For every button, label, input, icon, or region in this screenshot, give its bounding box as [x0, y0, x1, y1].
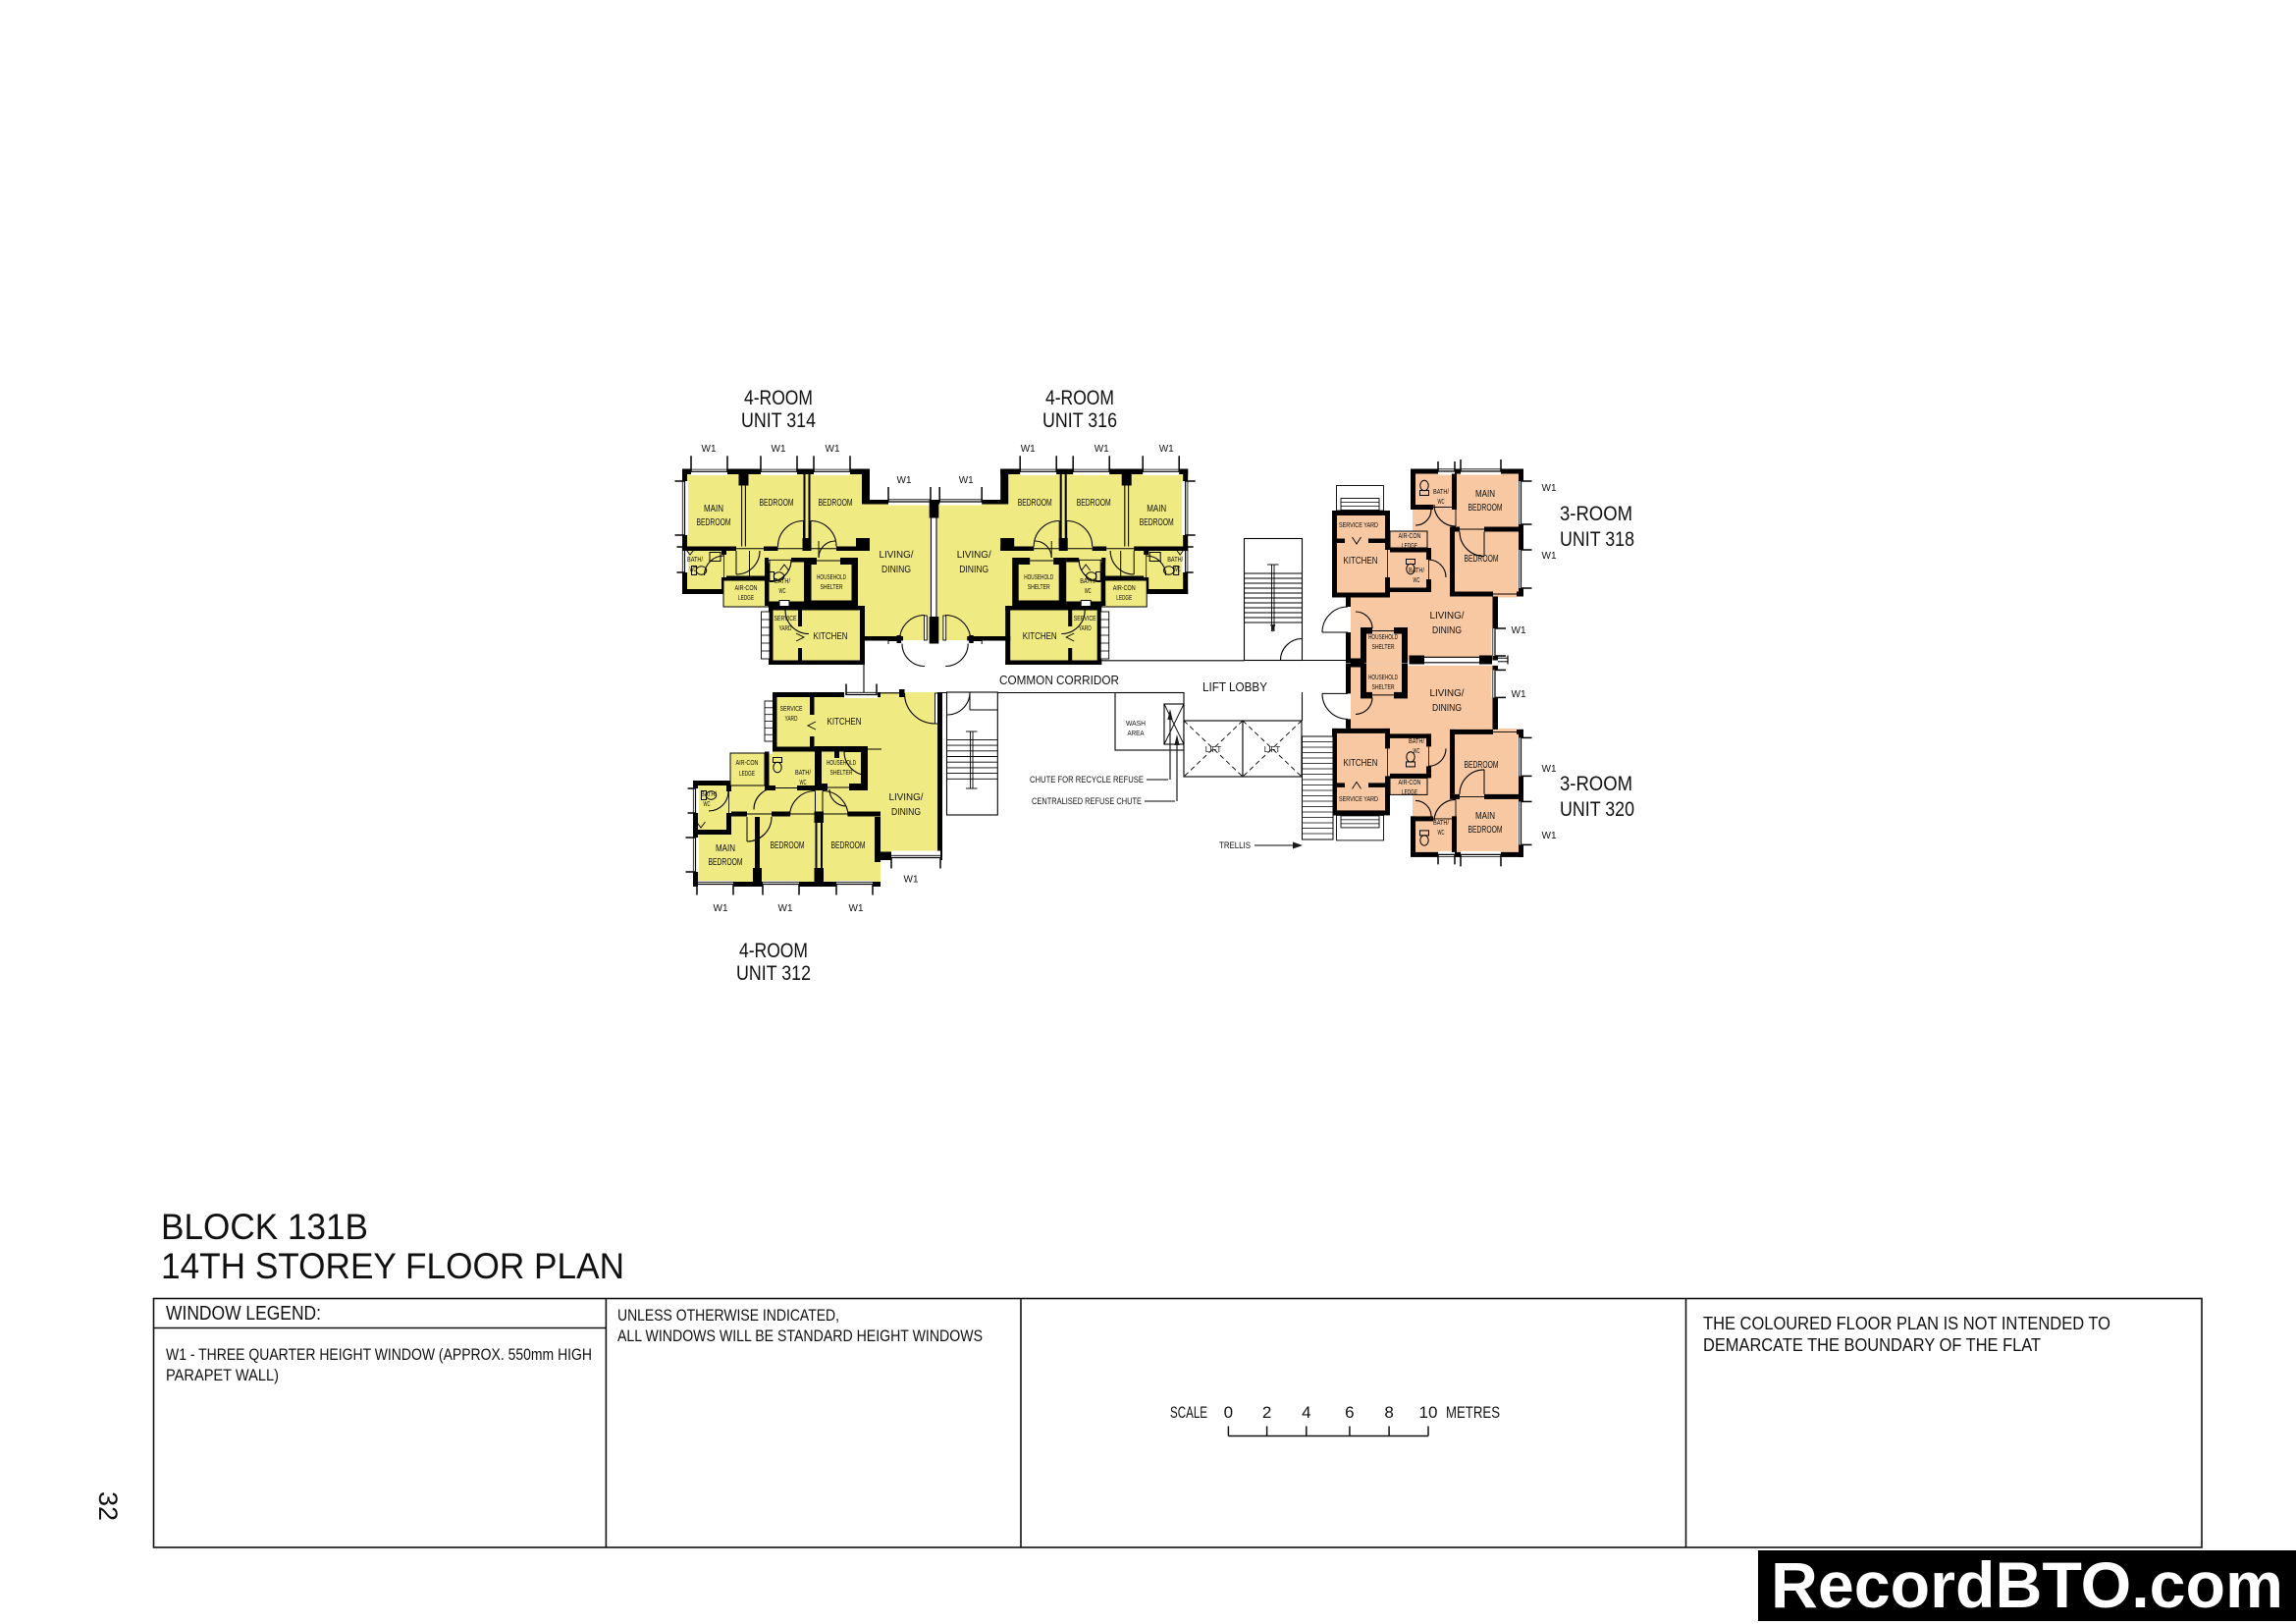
- svg-text:YARD: YARD: [785, 716, 798, 723]
- svg-text:4-ROOM: 4-ROOM: [744, 387, 813, 409]
- svg-text:32: 32: [93, 1491, 123, 1521]
- svg-text:BEDROOM: BEDROOM: [697, 516, 731, 528]
- svg-text:W1: W1: [714, 903, 728, 914]
- svg-text:RecordBTO.com: RecordBTO.com: [1771, 1548, 2283, 1621]
- svg-text:UNIT 316: UNIT 316: [1042, 409, 1117, 432]
- svg-text:YARD: YARD: [779, 625, 792, 632]
- svg-text:METRES: METRES: [1446, 1403, 1500, 1422]
- svg-text:3-ROOM: 3-ROOM: [1560, 503, 1632, 525]
- svg-text:LIFT: LIFT: [1205, 745, 1222, 754]
- svg-text:WC: WC: [1438, 499, 1445, 506]
- svg-text:W1: W1: [849, 903, 864, 914]
- svg-text:HOUSEHOLD: HOUSEHOLD: [1024, 574, 1053, 581]
- svg-text:SHELTER: SHELTER: [1372, 684, 1395, 691]
- svg-text:WASH: WASH: [1126, 719, 1146, 728]
- svg-text:WC: WC: [704, 801, 711, 808]
- svg-text:SERVICE: SERVICE: [774, 616, 797, 623]
- svg-text:WC: WC: [779, 588, 786, 595]
- svg-text:COMMON CORRIDOR: COMMON CORRIDOR: [999, 673, 1119, 687]
- svg-text:MAIN: MAIN: [1475, 810, 1495, 822]
- svg-text:W1: W1: [904, 875, 919, 886]
- svg-text:W1: W1: [1512, 689, 1526, 700]
- svg-text:LEDGE: LEDGE: [1402, 543, 1417, 550]
- svg-text:KITCHEN: KITCHEN: [828, 716, 862, 728]
- svg-text:10: 10: [1419, 1403, 1438, 1422]
- svg-text:BEDROOM: BEDROOM: [1465, 553, 1499, 565]
- svg-text:BEDROOM: BEDROOM: [760, 497, 794, 509]
- svg-text:WINDOW LEGEND:: WINDOW LEGEND:: [166, 1303, 321, 1325]
- svg-text:WC: WC: [1414, 748, 1420, 755]
- svg-text:W1: W1: [1512, 625, 1526, 636]
- svg-text:CHUTE FOR RECYCLE REFUSE: CHUTE FOR RECYCLE REFUSE: [1030, 775, 1144, 785]
- svg-text:MAIN: MAIN: [1475, 488, 1495, 500]
- svg-text:SERVICE YARD: SERVICE YARD: [1339, 796, 1378, 803]
- svg-text:4: 4: [1302, 1403, 1310, 1422]
- svg-text:MAIN: MAIN: [704, 503, 723, 514]
- svg-text:BEDROOM: BEDROOM: [1468, 824, 1503, 836]
- svg-text:0: 0: [1224, 1403, 1233, 1422]
- svg-text:DINING: DINING: [959, 564, 988, 575]
- svg-text:3-ROOM: 3-ROOM: [1560, 773, 1632, 795]
- svg-text:BATH/: BATH/: [687, 557, 703, 564]
- svg-text:W1: W1: [1542, 551, 1557, 562]
- svg-text:DINING: DINING: [881, 564, 911, 575]
- svg-text:UNIT 312: UNIT 312: [736, 962, 811, 985]
- svg-text:DINING: DINING: [1432, 702, 1462, 714]
- svg-text:MAIN: MAIN: [1147, 503, 1166, 514]
- svg-text:CENTRALISED REFUSE CHUTE: CENTRALISED REFUSE CHUTE: [1032, 796, 1142, 807]
- svg-text:W1: W1: [1095, 444, 1109, 455]
- svg-text:8: 8: [1384, 1403, 1393, 1422]
- svg-text:BATH/: BATH/: [1433, 820, 1449, 827]
- svg-text:DINING: DINING: [891, 806, 921, 818]
- svg-text:HOUSEHOLD: HOUSEHOLD: [817, 574, 846, 581]
- svg-text:UNIT 320: UNIT 320: [1560, 798, 1634, 821]
- svg-text:W1 - THREE QUARTER HEIGHT WIND: W1 - THREE QUARTER HEIGHT WINDOW (APPROX…: [166, 1345, 592, 1364]
- svg-text:W1: W1: [897, 475, 912, 486]
- svg-text:SERVICE: SERVICE: [780, 706, 803, 713]
- svg-text:SCALE: SCALE: [1170, 1403, 1207, 1422]
- svg-text:AIR-CON: AIR-CON: [736, 760, 759, 767]
- svg-text:W1: W1: [778, 903, 793, 914]
- svg-text:KITCHEN: KITCHEN: [814, 630, 848, 642]
- svg-text:BATH/: BATH/: [795, 770, 811, 777]
- svg-text:BATH/: BATH/: [1409, 568, 1424, 574]
- svg-text:LIVING/: LIVING/: [1430, 687, 1465, 699]
- svg-text:LIVING/: LIVING/: [1430, 610, 1465, 622]
- svg-text:LIFT: LIFT: [1264, 745, 1281, 754]
- svg-text:LEDGE: LEDGE: [739, 771, 755, 778]
- svg-text:KITCHEN: KITCHEN: [1023, 630, 1057, 642]
- svg-text:THE COLOURED FLOOR PLAN IS NOT: THE COLOURED FLOOR PLAN IS NOT INTENDED …: [1703, 1314, 2110, 1333]
- svg-text:TRELLIS: TRELLIS: [1219, 840, 1251, 851]
- svg-text:HOUSEHOLD: HOUSEHOLD: [1368, 634, 1398, 641]
- svg-text:AIR-CON: AIR-CON: [1399, 533, 1421, 540]
- svg-text:6: 6: [1345, 1403, 1354, 1422]
- svg-text:LIVING/: LIVING/: [880, 549, 914, 561]
- svg-text:KITCHEN: KITCHEN: [1344, 757, 1378, 769]
- svg-text:W1: W1: [1021, 444, 1036, 455]
- svg-text:W1: W1: [959, 475, 974, 486]
- svg-text:W1: W1: [1542, 483, 1557, 494]
- svg-text:LEDGE: LEDGE: [1116, 595, 1132, 602]
- svg-text:14TH STOREY FLOOR PLAN: 14TH STOREY FLOOR PLAN: [161, 1246, 624, 1286]
- svg-text:WC: WC: [1414, 577, 1420, 584]
- svg-text:WC: WC: [690, 567, 697, 573]
- svg-text:WC: WC: [1174, 567, 1181, 573]
- svg-text:DINING: DINING: [1432, 624, 1462, 636]
- svg-text:BEDROOM: BEDROOM: [1077, 497, 1111, 509]
- svg-text:WC: WC: [1085, 588, 1092, 595]
- svg-text:AREA: AREA: [1128, 729, 1145, 737]
- svg-text:WC: WC: [800, 780, 807, 786]
- svg-text:DEMARCATE THE BOUNDARY OF THE: DEMARCATE THE BOUNDARY OF THE FLAT: [1703, 1335, 2041, 1355]
- svg-text:WC: WC: [1438, 830, 1445, 837]
- svg-text:W1: W1: [702, 444, 717, 455]
- svg-text:BATH/: BATH/: [1409, 738, 1424, 745]
- svg-text:YARD: YARD: [1079, 625, 1092, 632]
- svg-text:AIR-CON: AIR-CON: [735, 585, 758, 592]
- svg-text:BEDROOM: BEDROOM: [1465, 759, 1499, 771]
- svg-text:BLOCK 131B: BLOCK 131B: [161, 1207, 368, 1247]
- svg-text:AIR-CON: AIR-CON: [1399, 780, 1421, 786]
- svg-text:SERVICE: SERVICE: [1074, 616, 1096, 623]
- svg-text:BATH/: BATH/: [1167, 557, 1183, 564]
- svg-text:W1: W1: [826, 444, 840, 455]
- svg-text:2: 2: [1262, 1403, 1271, 1422]
- svg-text:ALL WINDOWS WILL BE STANDARD H: ALL WINDOWS WILL BE STANDARD HEIGHT WIND…: [617, 1326, 983, 1345]
- svg-text:BATH/: BATH/: [774, 578, 790, 585]
- svg-text:BEDROOM: BEDROOM: [771, 839, 805, 851]
- svg-text:UNLESS OTHERWISE INDICATED,: UNLESS OTHERWISE INDICATED,: [617, 1306, 839, 1325]
- svg-text:LEDGE: LEDGE: [738, 595, 754, 602]
- svg-text:BEDROOM: BEDROOM: [1468, 502, 1503, 514]
- svg-text:W1: W1: [1159, 444, 1174, 455]
- svg-text:SHELTER: SHELTER: [1028, 584, 1050, 591]
- svg-text:LEDGE: LEDGE: [1402, 789, 1417, 796]
- svg-text:SERVICE YARD: SERVICE YARD: [1339, 522, 1378, 529]
- svg-text:BEDROOM: BEDROOM: [819, 497, 853, 509]
- svg-text:BEDROOM: BEDROOM: [831, 839, 866, 851]
- svg-text:4-ROOM: 4-ROOM: [1045, 387, 1114, 409]
- svg-text:W1: W1: [772, 444, 786, 455]
- svg-text:BATH/: BATH/: [1080, 578, 1095, 585]
- svg-text:KITCHEN: KITCHEN: [1344, 555, 1378, 567]
- svg-text:AIR-CON: AIR-CON: [1113, 585, 1136, 592]
- svg-text:LIVING/: LIVING/: [889, 791, 924, 803]
- svg-text:LIFT LOBBY: LIFT LOBBY: [1202, 679, 1267, 694]
- svg-text:W1: W1: [1542, 764, 1557, 775]
- svg-text:BATH/: BATH/: [701, 791, 717, 798]
- svg-text:SHELTER: SHELTER: [1372, 644, 1395, 651]
- svg-text:HOUSEHOLD: HOUSEHOLD: [827, 760, 856, 767]
- svg-text:SHELTER: SHELTER: [830, 770, 853, 777]
- svg-text:MAIN: MAIN: [716, 842, 735, 854]
- svg-text:HOUSEHOLD: HOUSEHOLD: [1368, 675, 1398, 681]
- svg-text:UNIT 314: UNIT 314: [741, 409, 816, 432]
- svg-text:UNIT 318: UNIT 318: [1560, 528, 1634, 551]
- svg-text:BEDROOM: BEDROOM: [709, 856, 743, 868]
- svg-text:LIVING/: LIVING/: [957, 549, 991, 561]
- svg-text:4-ROOM: 4-ROOM: [739, 940, 808, 962]
- svg-text:BATH/: BATH/: [1433, 489, 1449, 496]
- svg-text:BEDROOM: BEDROOM: [1140, 516, 1174, 528]
- svg-text:SHELTER: SHELTER: [821, 584, 843, 591]
- svg-text:W1: W1: [1542, 831, 1557, 841]
- svg-text:PARAPET WALL): PARAPET WALL): [166, 1366, 279, 1384]
- svg-text:BEDROOM: BEDROOM: [1018, 497, 1052, 509]
